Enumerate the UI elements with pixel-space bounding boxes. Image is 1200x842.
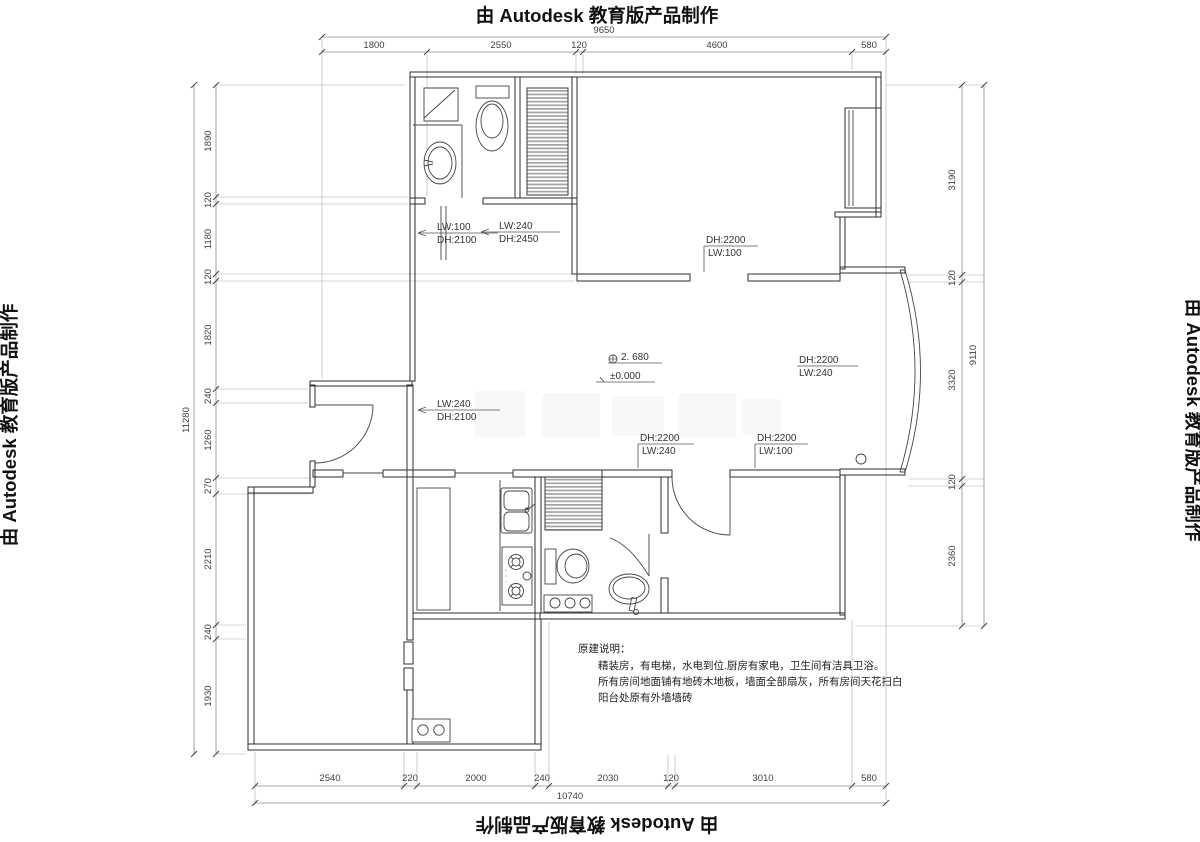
dim-seg: 120 — [203, 269, 214, 285]
dim-text-right: 9110 3190 120 3320 120 2360 — [947, 169, 979, 566]
toilet-top-bowl — [476, 101, 508, 151]
edu-banner-bottom: 由 Autodesk 教育版产品制作 — [475, 814, 718, 835]
dim-seg: 2550 — [490, 40, 511, 51]
dim-seg: 120 — [947, 474, 958, 490]
notes-line: 所有房间地面铺有地砖木地板，墙面全部扇灰，所有房间天花扫白 — [598, 675, 903, 688]
opening-label-line2: LW:100 — [708, 248, 742, 259]
dim-seg: 120 — [947, 270, 958, 286]
cad-viewport: 由 Autodesk 教育版产品制作 由 Autodesk 教育版产品制作 由 … — [0, 0, 1200, 842]
watermark — [474, 391, 782, 437]
opening-label-line1: LW:240 — [499, 221, 533, 232]
dim-seg: 240 — [534, 773, 550, 784]
opening-label-line1: DH:2200 — [706, 235, 746, 246]
opening-label-line1: LW:100 — [437, 222, 471, 233]
dim-seg: 3010 — [752, 773, 773, 784]
dim-total-left: 11280 — [181, 407, 192, 433]
opening-label-line2: LW:100 — [759, 446, 793, 457]
toilet2-tank — [545, 549, 556, 584]
dim-seg: 1930 — [203, 685, 214, 706]
dim-seg: 2210 — [203, 548, 214, 569]
opening-label: DH:2200 LW:100 — [755, 433, 808, 468]
washbasin2-tap-end — [634, 610, 639, 615]
stove — [502, 547, 532, 605]
hatched-shaft-top — [527, 88, 568, 195]
washbasin-top — [424, 142, 456, 184]
toilet-top-tank — [476, 86, 509, 98]
dim-ticks-left — [191, 82, 219, 757]
dim-seg: 240 — [203, 388, 214, 404]
opening-label: DH:2200 LW:240 — [638, 433, 694, 468]
ext-lines-right — [855, 85, 984, 626]
level-marks: 2. 680 ±0.000 — [596, 352, 662, 382]
opening-label-line1: DH:2200 — [757, 433, 797, 444]
notes-title: 原建说明： — [578, 642, 631, 655]
dim-total-right: 9110 — [968, 345, 979, 365]
dim-text-top: 9650 1800 2550 120 4600 580 — [363, 25, 877, 51]
bathroom-top-fixtures — [424, 86, 509, 184]
dim-seg: 120 — [203, 192, 214, 208]
dim-seg: 580 — [861, 773, 877, 784]
dim-text-left: 11280 1890 120 1180 120 1820 240 1260 27… — [181, 130, 214, 706]
dim-seg: 3320 — [947, 369, 958, 390]
dim-seg: 1180 — [203, 229, 214, 249]
level-value-upper: 2. 680 — [621, 352, 649, 363]
opening-label-line2: DH:2100 — [437, 235, 477, 246]
dim-total-top: 9650 — [593, 25, 614, 36]
dim-seg: 270 — [203, 478, 214, 494]
shafts — [527, 88, 602, 530]
kitchen-fixtures — [417, 488, 535, 610]
opening-label-line1: DH:2200 — [799, 355, 839, 366]
hatched-shaft-kitchen — [545, 477, 602, 530]
dim-seg: 2030 — [597, 773, 618, 784]
renovation-notes: 原建说明： 精装房，有电梯，水电到位.厨房有家电，卫生间有洁具卫浴。 所有房间地… — [578, 642, 903, 704]
opening-label: DH:2200 LW:240 — [797, 355, 858, 379]
dim-seg: 4600 — [706, 40, 727, 51]
entry-door-arc — [315, 405, 373, 463]
level-value-zero: ±0.000 — [610, 371, 641, 382]
opening-label-line2: DH:2100 — [437, 412, 477, 423]
window-glazing-lines — [849, 110, 853, 206]
notes-line: 精装房，有电梯，水电到位.厨房有家电，卫生间有洁具卫浴。 — [598, 659, 884, 672]
dim-total-bottom: 10740 — [557, 791, 583, 802]
balcony-fixtures — [412, 719, 450, 742]
dim-seg: 2360 — [947, 545, 958, 566]
dim-seg: 220 — [402, 773, 418, 784]
shower-tray — [424, 88, 458, 121]
dim-seg: 1800 — [363, 40, 384, 51]
opening-label: DH:2200 LW:100 — [704, 235, 758, 272]
opening-label-line2: LW:240 — [799, 368, 833, 379]
opening-label-line1: DH:2200 — [640, 433, 680, 444]
opening-label-line1: LW:240 — [437, 399, 471, 410]
dim-seg: 580 — [861, 40, 877, 51]
column-circle — [856, 454, 866, 464]
dim-seg: 2000 — [465, 773, 486, 784]
dim-seg: 1820 — [203, 324, 214, 345]
dim-seg: 2540 — [319, 773, 340, 784]
bath2-door-arc — [610, 538, 649, 576]
edu-banner-left: 由 Autodesk 教育版产品制作 — [0, 303, 20, 546]
vanity-counter — [544, 595, 592, 612]
edu-banner-right: 由 Autodesk 教育版产品制作 — [1183, 299, 1200, 542]
dim-seg: 120 — [663, 773, 679, 784]
dim-seg: 1890 — [203, 130, 214, 151]
bathroom2-fixtures — [544, 549, 649, 615]
dim-seg: 1260 — [203, 429, 214, 450]
bay-window-arc — [900, 270, 921, 472]
dim-seg: 3190 — [947, 169, 958, 190]
opening-label-line2: DH:2450 — [499, 234, 539, 245]
bedroom2-door-arc — [672, 477, 730, 535]
floor-plan-drawing: 由 Autodesk 教育版产品制作 由 Autodesk 教育版产品制作 由 … — [0, 0, 1200, 842]
kitchen-sink — [501, 488, 532, 533]
dim-seg: 120 — [571, 40, 587, 51]
kitchen-cabinet — [417, 488, 450, 610]
notes-line: 阳台处原有外墙墙砖 — [598, 691, 693, 704]
dim-seg: 240 — [203, 624, 214, 640]
opening-label-line2: LW:240 — [642, 446, 676, 457]
washbasin2 — [609, 574, 649, 604]
edu-banner-top: 由 Autodesk 教育版产品制作 — [476, 5, 719, 26]
